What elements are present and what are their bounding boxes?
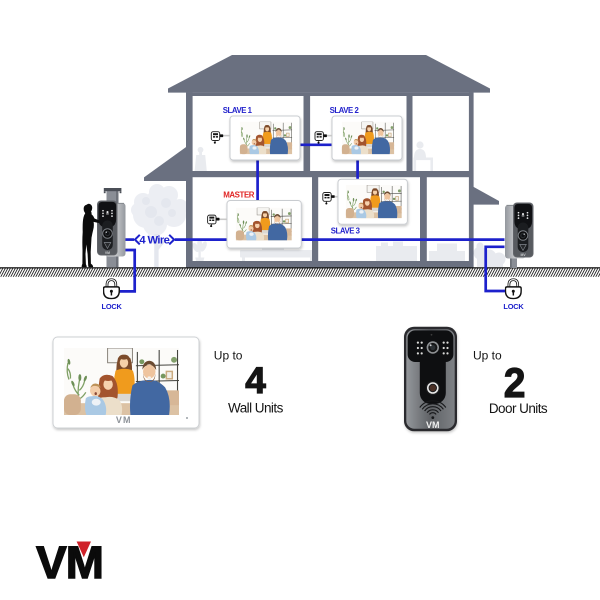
svg-text:SLAVE 1: SLAVE 1 (223, 106, 253, 115)
svg-text:SLAVE 3: SLAVE 3 (331, 227, 361, 236)
svg-text:VM: VM (116, 415, 132, 425)
svg-text:Door Units: Door Units (489, 401, 548, 416)
svg-text:Up to: Up to (473, 349, 502, 363)
svg-text:MASTER: MASTER (223, 191, 255, 200)
svg-text:VM: VM (36, 537, 103, 588)
svg-text:4: 4 (245, 360, 266, 401)
svg-text:4 Wire: 4 Wire (139, 235, 169, 247)
svg-text:Up to: Up to (214, 349, 243, 363)
svg-text:SLAVE 2: SLAVE 2 (330, 106, 360, 115)
svg-text:LOCK: LOCK (503, 302, 524, 311)
svg-text:2: 2 (504, 358, 526, 406)
svg-text:Wall Units: Wall Units (228, 401, 284, 416)
svg-text:VM: VM (426, 420, 440, 430)
svg-text:LOCK: LOCK (102, 302, 123, 311)
